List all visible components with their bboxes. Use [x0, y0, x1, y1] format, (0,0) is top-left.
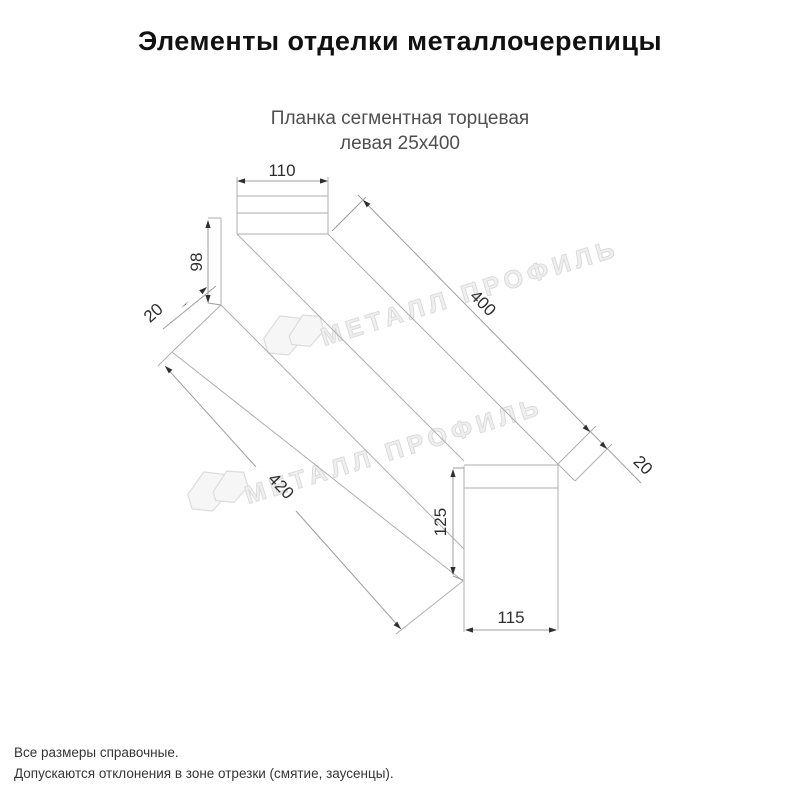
dimension-115: 115 [465, 608, 557, 633]
dimension-125: 125 [431, 468, 464, 580]
dim-125-label: 125 [431, 508, 450, 536]
metal-profil-logo-icon [259, 305, 328, 361]
dimension-400: 400 [332, 195, 641, 483]
dimension-20-left: 20 [140, 286, 216, 329]
dimension-20-right: 20 [600, 442, 657, 479]
dim-20-left-label: 20 [140, 300, 167, 327]
watermark-text: МЕТАЛЛ ПРОФИЛЬ [318, 234, 623, 351]
footnote-2: Допускаются отклонения в зоне отрезки (с… [14, 763, 394, 784]
footnote-1: Все размеры справочные. [14, 742, 394, 763]
dim-98-label: 98 [187, 253, 206, 272]
dim-20-right-label: 20 [629, 452, 656, 479]
dimension-98: 98 [187, 220, 221, 305]
dimension-110: 110 [237, 161, 328, 184]
dim-115-label: 115 [497, 608, 524, 627]
part-outline [158, 177, 612, 634]
dim-110-label: 110 [268, 161, 295, 180]
metal-profil-logo-icon [183, 461, 252, 517]
watermark-lower: МЕТАЛЛ ПРОФИЛЬ [183, 392, 547, 516]
footnotes: Все размеры справочные. Допускаются откл… [14, 742, 394, 784]
technical-drawing: МЕТАЛЛ ПРОФИЛЬ МЕТАЛЛ ПРОФИЛЬ [0, 0, 800, 800]
page: { "title": "Элементы отделки металлочере… [0, 0, 800, 800]
watermark-upper: МЕТАЛЛ ПРОФИЛЬ [259, 234, 623, 360]
